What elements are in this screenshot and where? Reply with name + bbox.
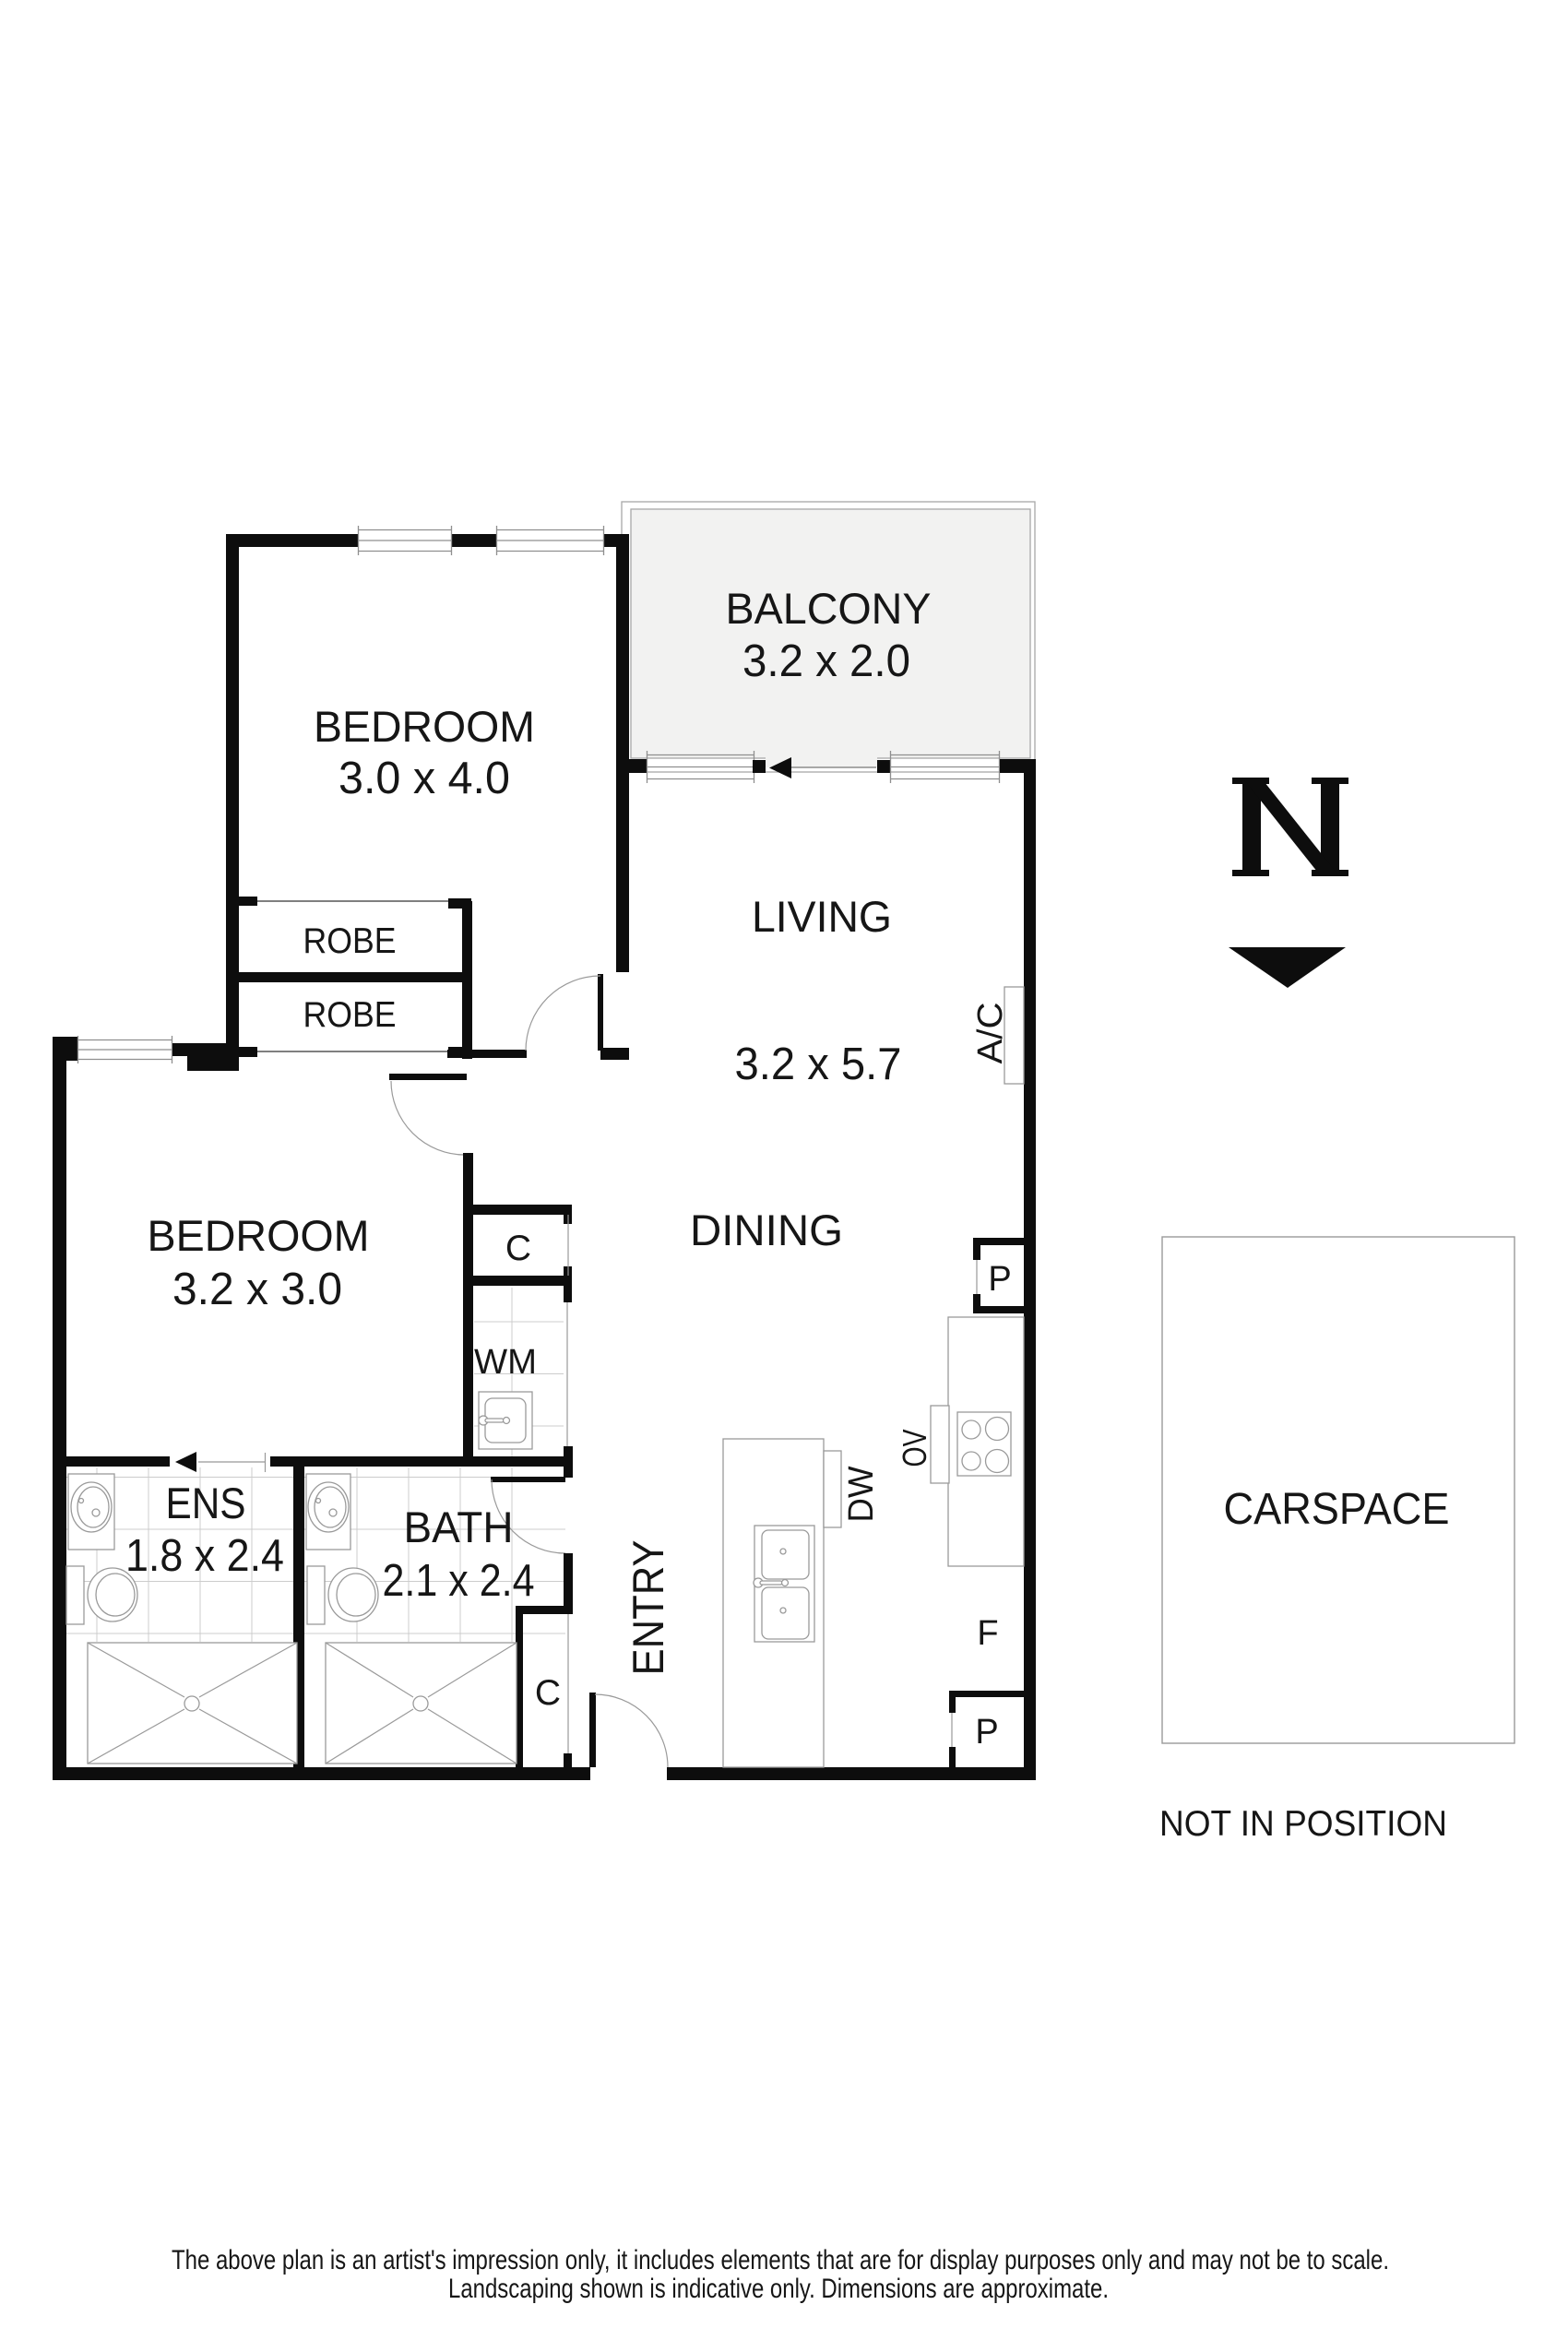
svg-text:The above plan is an artist's: The above plan is an artist's impression…: [172, 2245, 1389, 2275]
svg-text:3.2 x 5.7: 3.2 x 5.7: [735, 1039, 902, 1089]
svg-text:LIVING: LIVING: [752, 892, 892, 941]
svg-text:3.0 x 4.0: 3.0 x 4.0: [339, 754, 510, 803]
svg-text:OV: OV: [896, 1430, 933, 1467]
svg-text:P: P: [988, 1260, 1011, 1299]
svg-text:BALCONY: BALCONY: [726, 584, 932, 633]
svg-text:C: C: [535, 1673, 561, 1713]
svg-text:BEDROOM: BEDROOM: [148, 1211, 370, 1260]
svg-text:ENTRY: ENTRY: [624, 1540, 672, 1676]
svg-text:WM: WM: [474, 1343, 537, 1382]
svg-text:ENS: ENS: [166, 1479, 246, 1527]
svg-text:DW: DW: [842, 1466, 881, 1522]
svg-text:2.1 x 2.4: 2.1 x 2.4: [383, 1556, 535, 1606]
svg-text:BATH: BATH: [404, 1503, 514, 1551]
svg-text:ROBE: ROBE: [303, 995, 397, 1035]
svg-text:DINING: DINING: [690, 1206, 843, 1254]
svg-text:C: C: [505, 1229, 531, 1268]
svg-text:3.2 x 3.0: 3.2 x 3.0: [172, 1265, 342, 1314]
svg-text:A/C: A/C: [971, 1003, 1010, 1064]
svg-text:CARSPACE: CARSPACE: [1224, 1485, 1450, 1534]
svg-text:NOT IN POSITION: NOT IN POSITION: [1159, 1804, 1447, 1844]
svg-text:1.8 x 2.4: 1.8 x 2.4: [125, 1531, 284, 1581]
svg-text:P: P: [975, 1713, 998, 1752]
svg-text:BEDROOM: BEDROOM: [314, 702, 535, 751]
svg-text:3.2 x 2.0: 3.2 x 2.0: [742, 636, 910, 686]
svg-text:F: F: [977, 1614, 998, 1653]
svg-text:Landscaping shown is indicativ: Landscaping shown is indicative only. Di…: [448, 2274, 1109, 2304]
svg-text:ROBE: ROBE: [303, 921, 397, 961]
